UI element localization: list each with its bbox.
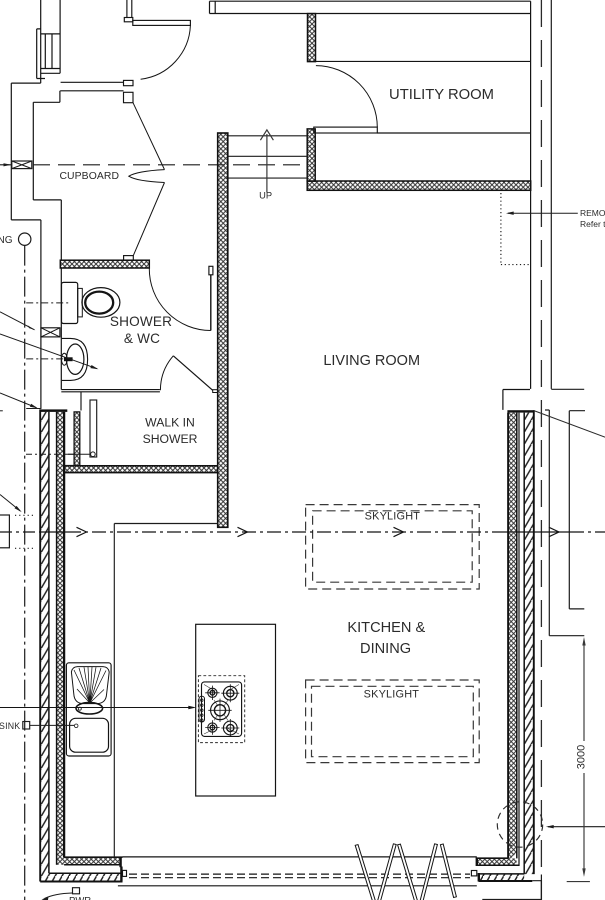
svg-text:UTILITY ROOM: UTILITY ROOM — [389, 87, 494, 103]
svg-text:SINK: SINK — [0, 721, 20, 731]
svg-text:PWR: PWR — [69, 896, 91, 900]
svg-text:CUPBOARD: CUPBOARD — [59, 171, 119, 182]
svg-text:LIVING ROOM: LIVING ROOM — [323, 353, 420, 369]
svg-text:SKYLIGHT: SKYLIGHT — [365, 510, 421, 522]
svg-text:3000: 3000 — [576, 745, 588, 769]
svg-text:WALK IN: WALK IN — [145, 415, 195, 429]
svg-text:UP: UP — [259, 190, 272, 200]
svg-text:SKYLIGHT: SKYLIGHT — [364, 688, 420, 700]
svg-text:SHOWER: SHOWER — [110, 314, 172, 329]
svg-text:DINING: DINING — [360, 641, 411, 657]
svg-text:REMOVE: REMOVE — [580, 208, 605, 218]
svg-text:& WC: & WC — [124, 331, 160, 346]
svg-text:SHOWER: SHOWER — [143, 432, 198, 446]
svg-text:KITCHEN &: KITCHEN & — [347, 620, 425, 636]
svg-text:NG: NG — [0, 235, 13, 246]
svg-text:Refer to: Refer to — [580, 219, 605, 229]
